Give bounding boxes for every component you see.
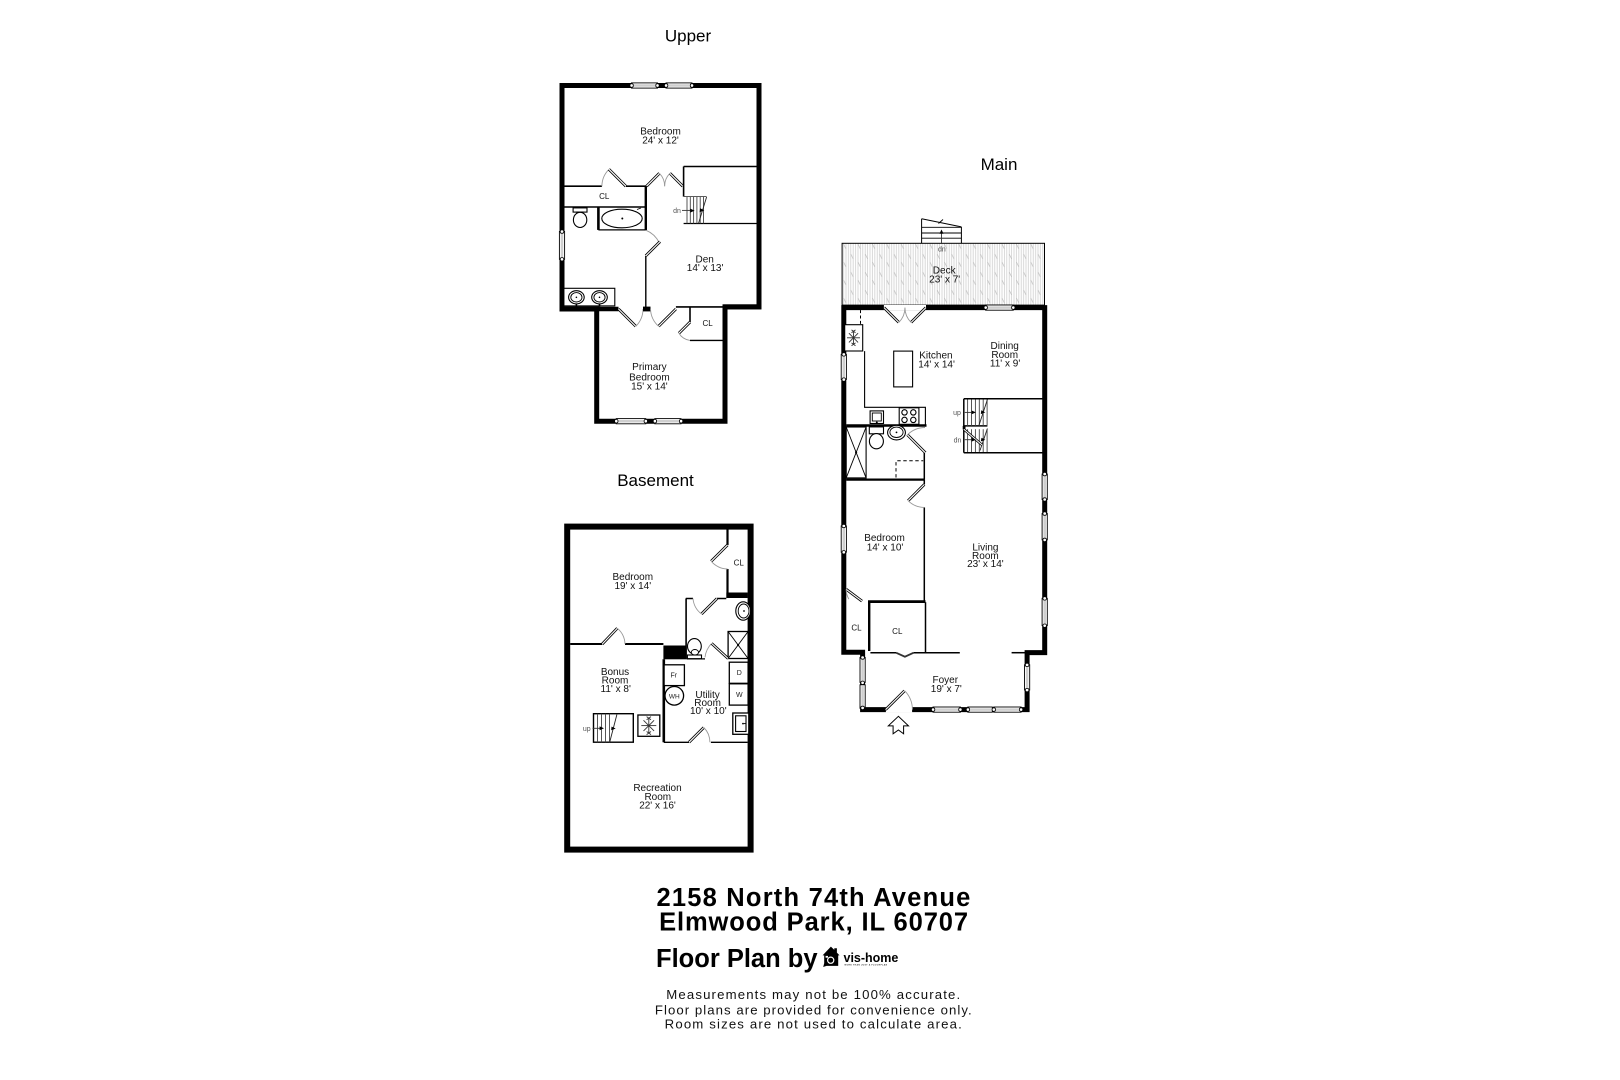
svg-text:19' x 14': 19' x 14': [614, 581, 651, 592]
svg-text:Upper: Upper: [665, 27, 712, 46]
svg-text:CL: CL: [599, 192, 610, 201]
svg-text:23' x 14': 23' x 14': [967, 559, 1004, 570]
svg-text:10' x 10': 10' x 10': [690, 706, 727, 717]
svg-text:19' x 7': 19' x 7': [931, 684, 962, 695]
svg-text:dn: dn: [954, 437, 962, 444]
svg-text:14' x 14': 14' x 14': [918, 360, 955, 371]
svg-text:11' x 8': 11' x 8': [601, 684, 631, 695]
svg-text:15' x 14': 15' x 14': [631, 382, 668, 393]
svg-text:MORE THAN JUST A FLOORPLAN: MORE THAN JUST A FLOORPLAN: [845, 963, 888, 966]
svg-text:Floor Plan by: Floor Plan by: [656, 945, 818, 973]
svg-text:Measurements may not be 100% a: Measurements may not be 100% accurate.: [666, 987, 961, 1002]
svg-text:24' x 12': 24' x 12': [642, 136, 679, 147]
svg-text:14' x 13': 14' x 13': [687, 263, 724, 274]
svg-text:CL: CL: [892, 627, 903, 636]
svg-text:Elmwood Park, IL 60707: Elmwood Park, IL 60707: [659, 909, 969, 937]
svg-text:22' x 16': 22' x 16': [639, 800, 676, 811]
svg-text:CL: CL: [702, 319, 713, 328]
svg-text:Fr: Fr: [670, 673, 677, 680]
svg-text:CL: CL: [851, 624, 862, 633]
svg-text:dn: dn: [673, 208, 681, 215]
svg-text:dn: dn: [938, 247, 946, 254]
svg-text:D: D: [737, 670, 742, 677]
svg-text:Primary: Primary: [632, 362, 666, 373]
svg-text:Basement: Basement: [617, 471, 694, 490]
svg-text:Main: Main: [981, 155, 1018, 174]
svg-text:W: W: [736, 692, 743, 699]
svg-text:vis-home: vis-home: [844, 951, 899, 965]
svg-text:WH: WH: [669, 693, 680, 700]
svg-text:Floor plans are provided for c: Floor plans are provided for convenience…: [655, 1002, 973, 1017]
svg-text:Room sizes are not used to cal: Room sizes are not used to calculate are…: [665, 1016, 963, 1031]
svg-text:11' x 9': 11' x 9': [990, 358, 1020, 369]
svg-text:up: up: [953, 410, 961, 417]
svg-text:14' x 10': 14' x 10': [867, 542, 904, 553]
svg-text:up: up: [583, 726, 591, 733]
svg-text:CL: CL: [734, 558, 745, 567]
svg-text:23' x 7': 23' x 7': [929, 274, 960, 285]
